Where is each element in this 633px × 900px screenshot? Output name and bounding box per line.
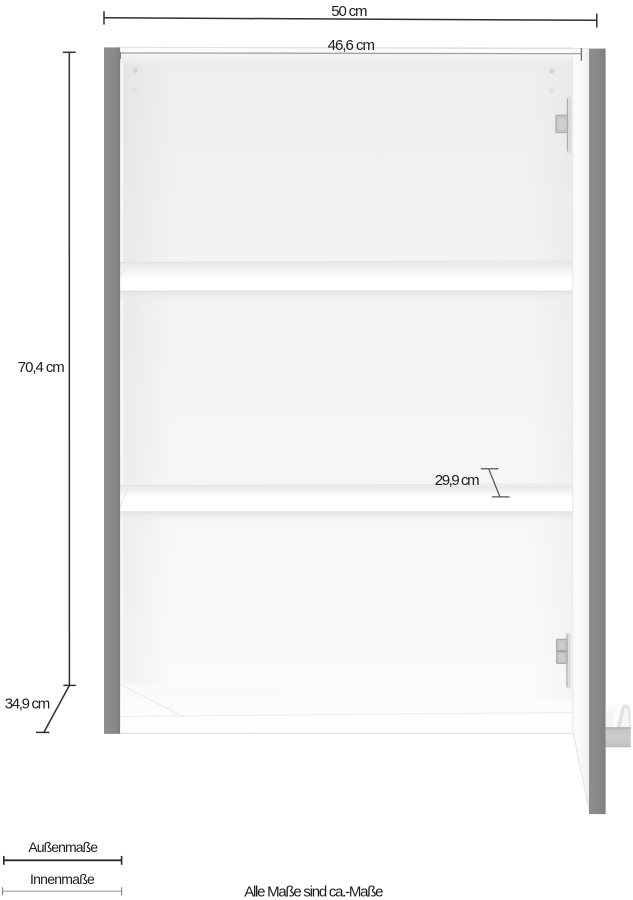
svg-text:70,4 cm: 70,4 cm	[18, 359, 65, 376]
svg-text:Innenmaße: Innenmaße	[30, 871, 95, 887]
svg-text:Alle Maße sind ca.-Maße: Alle Maße sind ca.-Maße	[244, 883, 383, 900]
svg-text:34,9 cm: 34,9 cm	[5, 695, 51, 712]
svg-text:50 cm: 50 cm	[331, 3, 367, 20]
svg-text:46,6 cm: 46,6 cm	[328, 37, 375, 54]
svg-text:Außenmaße: Außenmaße	[28, 839, 98, 855]
svg-text:29,9 cm: 29,9 cm	[435, 472, 480, 489]
